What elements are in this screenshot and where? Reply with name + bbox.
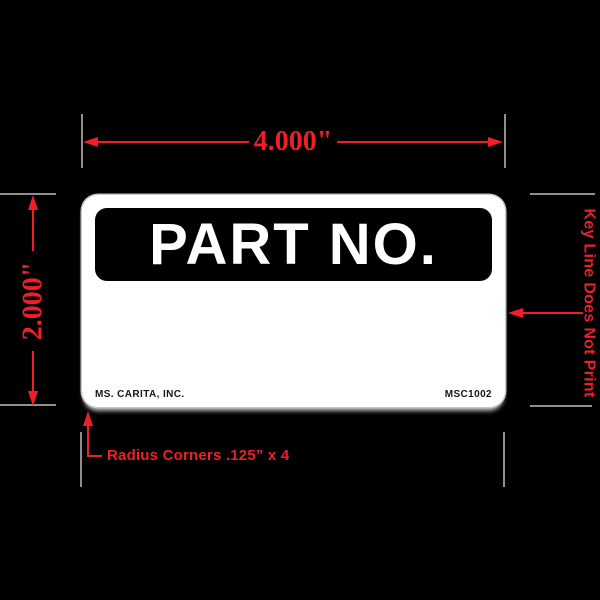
arrowhead-right-icon	[488, 137, 503, 147]
radius-corners-note: Radius Corners .125” x 4	[107, 447, 289, 464]
label-title: PART NO.	[149, 211, 438, 278]
artboard: 4.000" 2.000" PART NO. MS. CARITA, INC. …	[0, 0, 600, 600]
label-footer-company: MS. CARITA, INC.	[95, 389, 185, 400]
label-footer-code: MSC1002	[445, 389, 492, 400]
height-dimension-value: 2.000"	[17, 261, 49, 340]
radius-leader-vertical	[87, 423, 89, 457]
label-proof: PART NO. MS. CARITA, INC. MSC1002	[82, 195, 505, 407]
label-header-band: PART NO.	[95, 208, 492, 281]
keyline-leader-line	[520, 312, 583, 314]
dimension-line-segment	[337, 141, 488, 143]
radius-leader-elbow	[87, 455, 102, 457]
width-dimension: 4.000"	[83, 131, 503, 153]
keyline-note: Key Line Does Not Print	[577, 197, 600, 409]
extension-line-bottom-left	[80, 432, 82, 487]
extension-line-bottom-right	[503, 432, 505, 487]
height-dimension: 2.000"	[22, 195, 44, 406]
label-footer: MS. CARITA, INC. MSC1002	[95, 389, 492, 400]
extension-line-right-top	[530, 193, 595, 195]
width-dimension-value: 4.000"	[249, 131, 338, 153]
dimension-line-segment	[32, 210, 34, 251]
arrowhead-up-icon	[28, 195, 38, 210]
dimension-line-segment	[98, 141, 249, 143]
extension-line-top-right	[504, 114, 506, 168]
keyline-note-text: Key Line Does Not Print	[580, 208, 598, 397]
dimension-line-segment	[32, 351, 34, 392]
arrowhead-left-icon	[83, 137, 98, 147]
arrowhead-down-icon	[28, 391, 38, 406]
